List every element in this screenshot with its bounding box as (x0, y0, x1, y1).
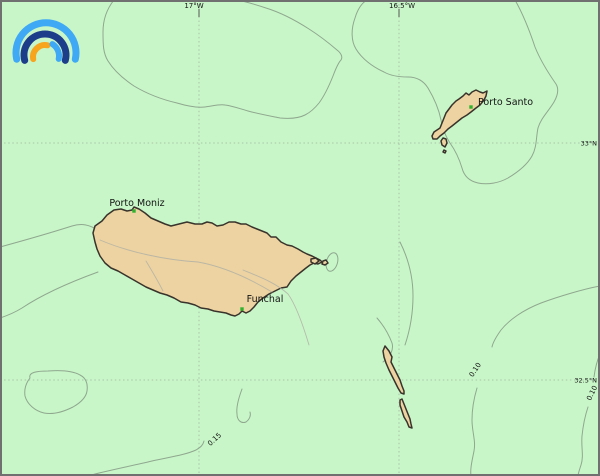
porto-santo-islet-small (443, 150, 446, 153)
map-canvas: 17°W 16.5°W 33°N 32.5°N Porto Moniz Func… (0, 0, 600, 476)
sea-background (0, 0, 600, 476)
porto-santo-islet (441, 138, 447, 147)
place-label-funchal: Funchal (247, 294, 284, 305)
city-dot-porto-santo (469, 105, 472, 108)
place-label-porto-santo: Porto Santo (478, 97, 533, 108)
top-axis-label-17w: 17°W (184, 2, 203, 10)
top-axis-label-16-5w: 16.5°W (389, 2, 415, 10)
city-dot-funchal (240, 307, 243, 310)
right-axis-label-32-5n: 32.5°N (574, 377, 597, 385)
right-axis-label-33n: 33°N (581, 140, 598, 148)
city-dot-porto-moniz (132, 209, 135, 212)
place-label-porto-moniz: Porto Moniz (109, 198, 164, 209)
madeira-east-islet (322, 260, 328, 265)
map-figure: 17°W 16.5°W 33°N 32.5°N Porto Moniz Func… (0, 0, 600, 476)
